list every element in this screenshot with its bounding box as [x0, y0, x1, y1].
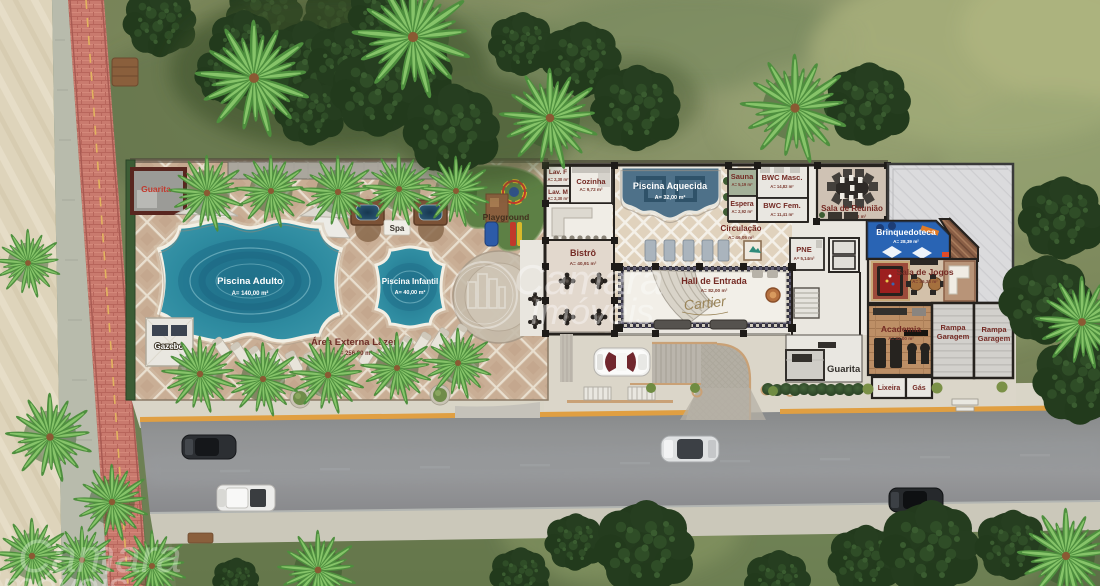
svg-text:PNE: PNE	[796, 245, 811, 254]
svg-text:Gazebo: Gazebo	[155, 342, 184, 351]
svg-text:A= 2,30 m²: A= 2,30 m²	[547, 177, 569, 182]
svg-text:Imóveis: Imóveis	[0, 565, 128, 586]
svg-text:A= 14,82 m²: A= 14,82 m²	[770, 184, 794, 189]
svg-text:A= 2,30 m²: A= 2,30 m²	[547, 196, 569, 201]
svg-text:Piscina Infantil: Piscina Infantil	[382, 277, 438, 286]
svg-text:A= 5,14m²: A= 5,14m²	[794, 256, 815, 261]
svg-text:Piscina Adulto: Piscina Adulto	[217, 276, 283, 287]
svg-text:Sala de Reunião: Sala de Reunião	[821, 204, 883, 213]
svg-text:Garagem: Garagem	[937, 332, 970, 341]
svg-text:Garagem: Garagem	[978, 334, 1011, 343]
svg-text:Spa: Spa	[390, 224, 405, 233]
svg-text:A= 5,19 m²: A= 5,19 m²	[731, 182, 753, 187]
svg-text:A= 32,00 m²: A= 32,00 m²	[655, 194, 686, 201]
svg-text:A= 46,05 m²: A= 46,05 m²	[728, 235, 754, 240]
svg-text:Circulação: Circulação	[721, 224, 762, 233]
svg-text:A= 11,41 m²: A= 11,41 m²	[770, 212, 794, 217]
svg-text:Playground: Playground	[483, 212, 530, 222]
svg-text:Cozinha: Cozinha	[576, 177, 606, 186]
svg-text:Guarita: Guarita	[141, 184, 171, 194]
svg-text:BWC Fem.: BWC Fem.	[763, 201, 801, 210]
svg-text:Gás: Gás	[912, 385, 925, 392]
svg-text:A= 40,00 m²: A= 40,00 m²	[395, 289, 426, 296]
svg-text:Academia: Academia	[881, 324, 921, 334]
svg-text:A= 140,00 m²: A= 140,00 m²	[232, 290, 269, 297]
svg-text:A= 9,72 m²: A= 9,72 m²	[579, 187, 603, 192]
svg-text:A= 36,33 m²: A= 36,33 m²	[912, 279, 938, 284]
svg-text:Espera: Espera	[730, 201, 753, 208]
svg-text:Guarita: Guarita	[827, 364, 861, 375]
svg-text:A= 32,00 m²: A= 32,00 m²	[888, 336, 914, 341]
svg-text:Imóveis: Imóveis	[530, 291, 654, 332]
svg-text:Piscina Aquecida: Piscina Aquecida	[633, 181, 708, 191]
svg-text:Sauna: Sauna	[731, 172, 754, 181]
svg-text:Brinquedoteca: Brinquedoteca	[876, 227, 936, 237]
svg-text:Rampa: Rampa	[940, 323, 966, 332]
svg-text:A= 2,92 m²: A= 2,92 m²	[731, 209, 753, 214]
svg-text:BWC Masc.: BWC Masc.	[762, 173, 803, 182]
svg-text:Hall de Entrada: Hall de Entrada	[681, 276, 748, 286]
svg-text:Lixeira: Lixeira	[878, 385, 901, 392]
svg-text:Lav. M: Lav. M	[548, 189, 568, 196]
svg-text:Lav. F: Lav. F	[549, 169, 567, 176]
svg-text:A= 28,39 m²: A= 28,39 m²	[893, 239, 919, 244]
svg-text:Rampa: Rampa	[981, 325, 1007, 334]
svg-text:Sala de Jogos: Sala de Jogos	[896, 267, 953, 277]
